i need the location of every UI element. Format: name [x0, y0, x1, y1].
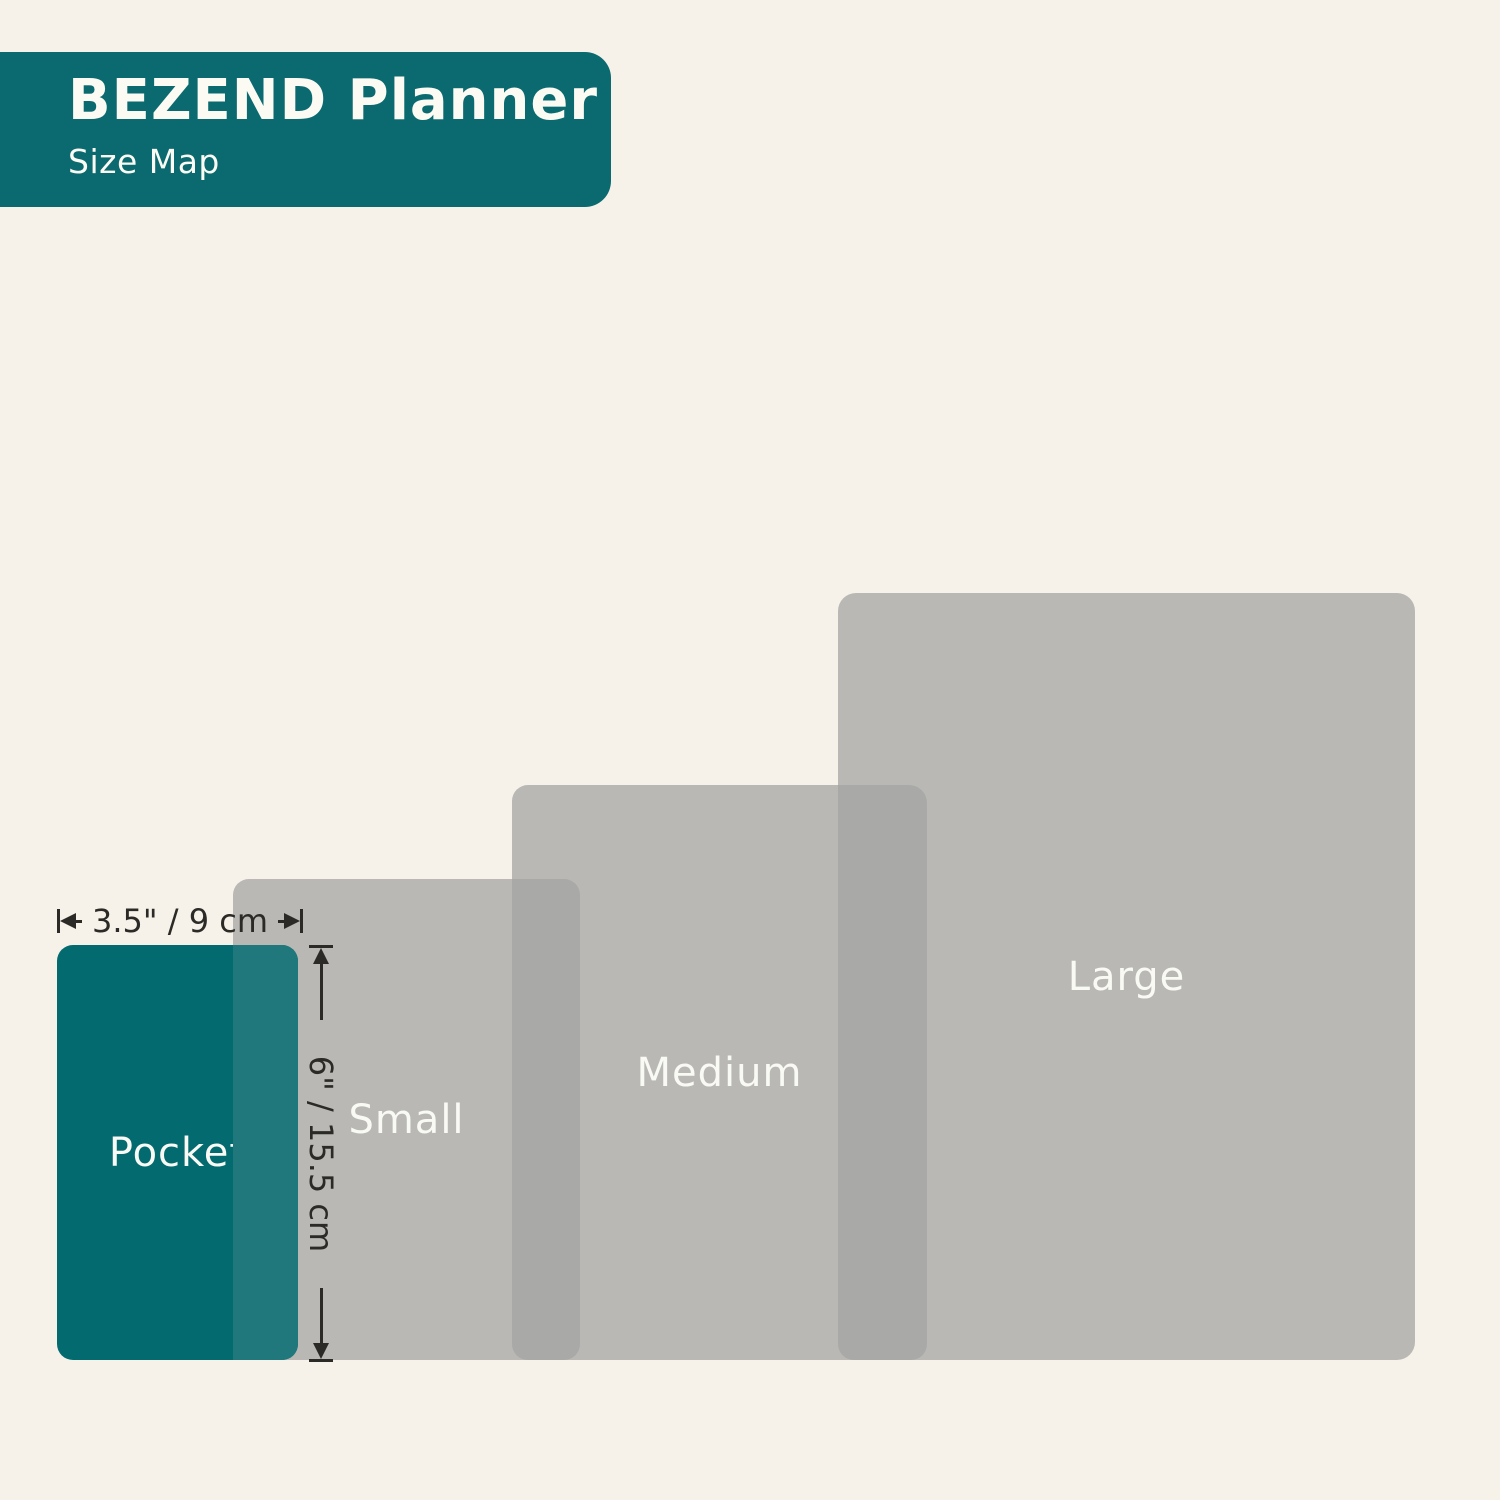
overlap-pocket-small [233, 945, 298, 1360]
size-map-canvas: BEZEND Planner Size Map Small Medium Lar… [0, 0, 1500, 1500]
size-label-pocket: Pocket [109, 1130, 246, 1176]
page-title: BEZEND Planner [68, 70, 611, 132]
page-subtitle: Size Map [68, 142, 611, 181]
size-label-large: Large [1068, 954, 1186, 1000]
dim-end-cap-bottom [309, 1359, 333, 1362]
overlap-medium-large [838, 785, 927, 1360]
arrow-down-icon [313, 1343, 329, 1359]
dim-line-segment [320, 1288, 323, 1344]
size-label-small: Small [348, 1097, 464, 1143]
width-dimension: 3.5" / 9 cm [57, 902, 298, 940]
dim-line-segment [320, 964, 323, 1020]
width-dimension-label: 3.5" / 9 cm [82, 902, 278, 940]
height-dimension: 6" / 15.5 cm [302, 945, 340, 1362]
height-dimension-label-box: 6" / 15.5 cm [302, 1020, 340, 1288]
dim-end-cap-right [300, 909, 303, 933]
arrow-up-icon [313, 948, 329, 964]
arrow-right-icon [284, 913, 300, 929]
header-card: BEZEND Planner Size Map [0, 52, 611, 207]
arrow-left-icon [60, 913, 76, 929]
overlap-small-medium [512, 879, 580, 1360]
height-dimension-label: 6" / 15.5 cm [302, 1055, 340, 1251]
size-label-medium: Medium [637, 1050, 803, 1096]
